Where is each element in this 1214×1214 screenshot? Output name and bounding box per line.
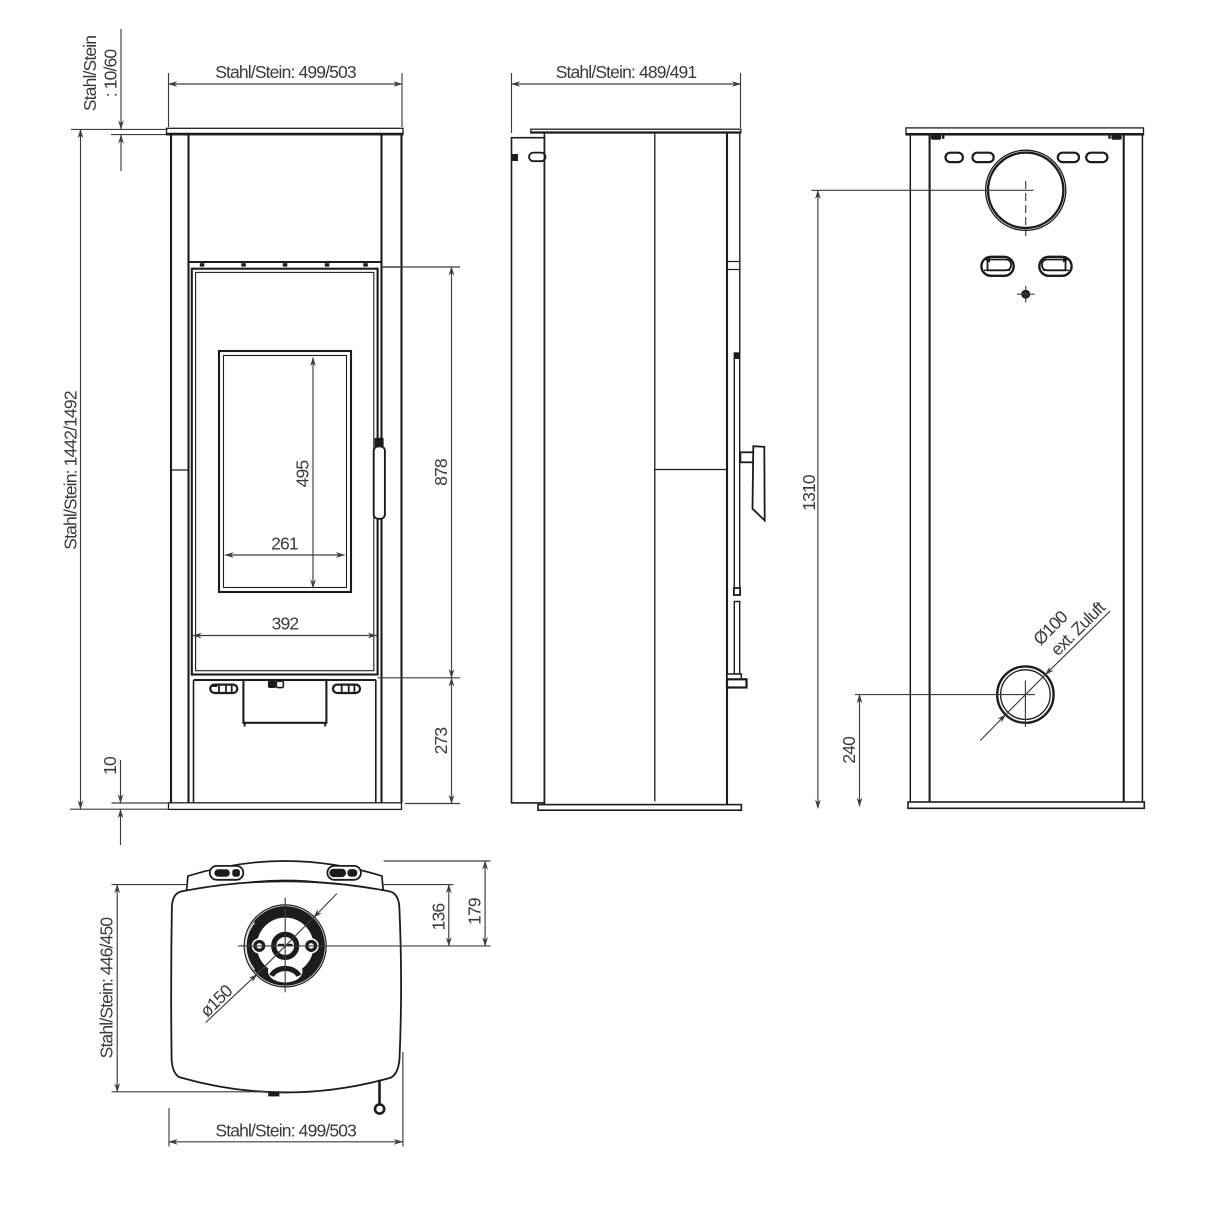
svg-text:392: 392 xyxy=(272,614,299,634)
svg-text:240: 240 xyxy=(839,736,859,764)
svg-text:Stahl/Stein: 1442/1492: Stahl/Stein: 1442/1492 xyxy=(61,391,81,550)
svg-text:Stahl/Stein: 499/503: Stahl/Stein: 499/503 xyxy=(215,62,356,82)
svg-text:Stahl/Stein: 489/491: Stahl/Stein: 489/491 xyxy=(556,62,697,82)
svg-text:495: 495 xyxy=(293,461,313,488)
svg-text:10: 10 xyxy=(100,756,120,775)
svg-text:Stahl/Stein: 499/503: Stahl/Stein: 499/503 xyxy=(215,1121,356,1141)
svg-text:Stahl/Stein: 446/450: Stahl/Stein: 446/450 xyxy=(97,917,117,1059)
svg-text:179: 179 xyxy=(465,898,485,925)
svg-text:1310: 1310 xyxy=(799,474,819,511)
svg-text:878: 878 xyxy=(431,459,451,486)
svg-text:136: 136 xyxy=(428,904,448,931)
svg-text:261: 261 xyxy=(271,534,298,554)
svg-text:273: 273 xyxy=(431,728,451,755)
